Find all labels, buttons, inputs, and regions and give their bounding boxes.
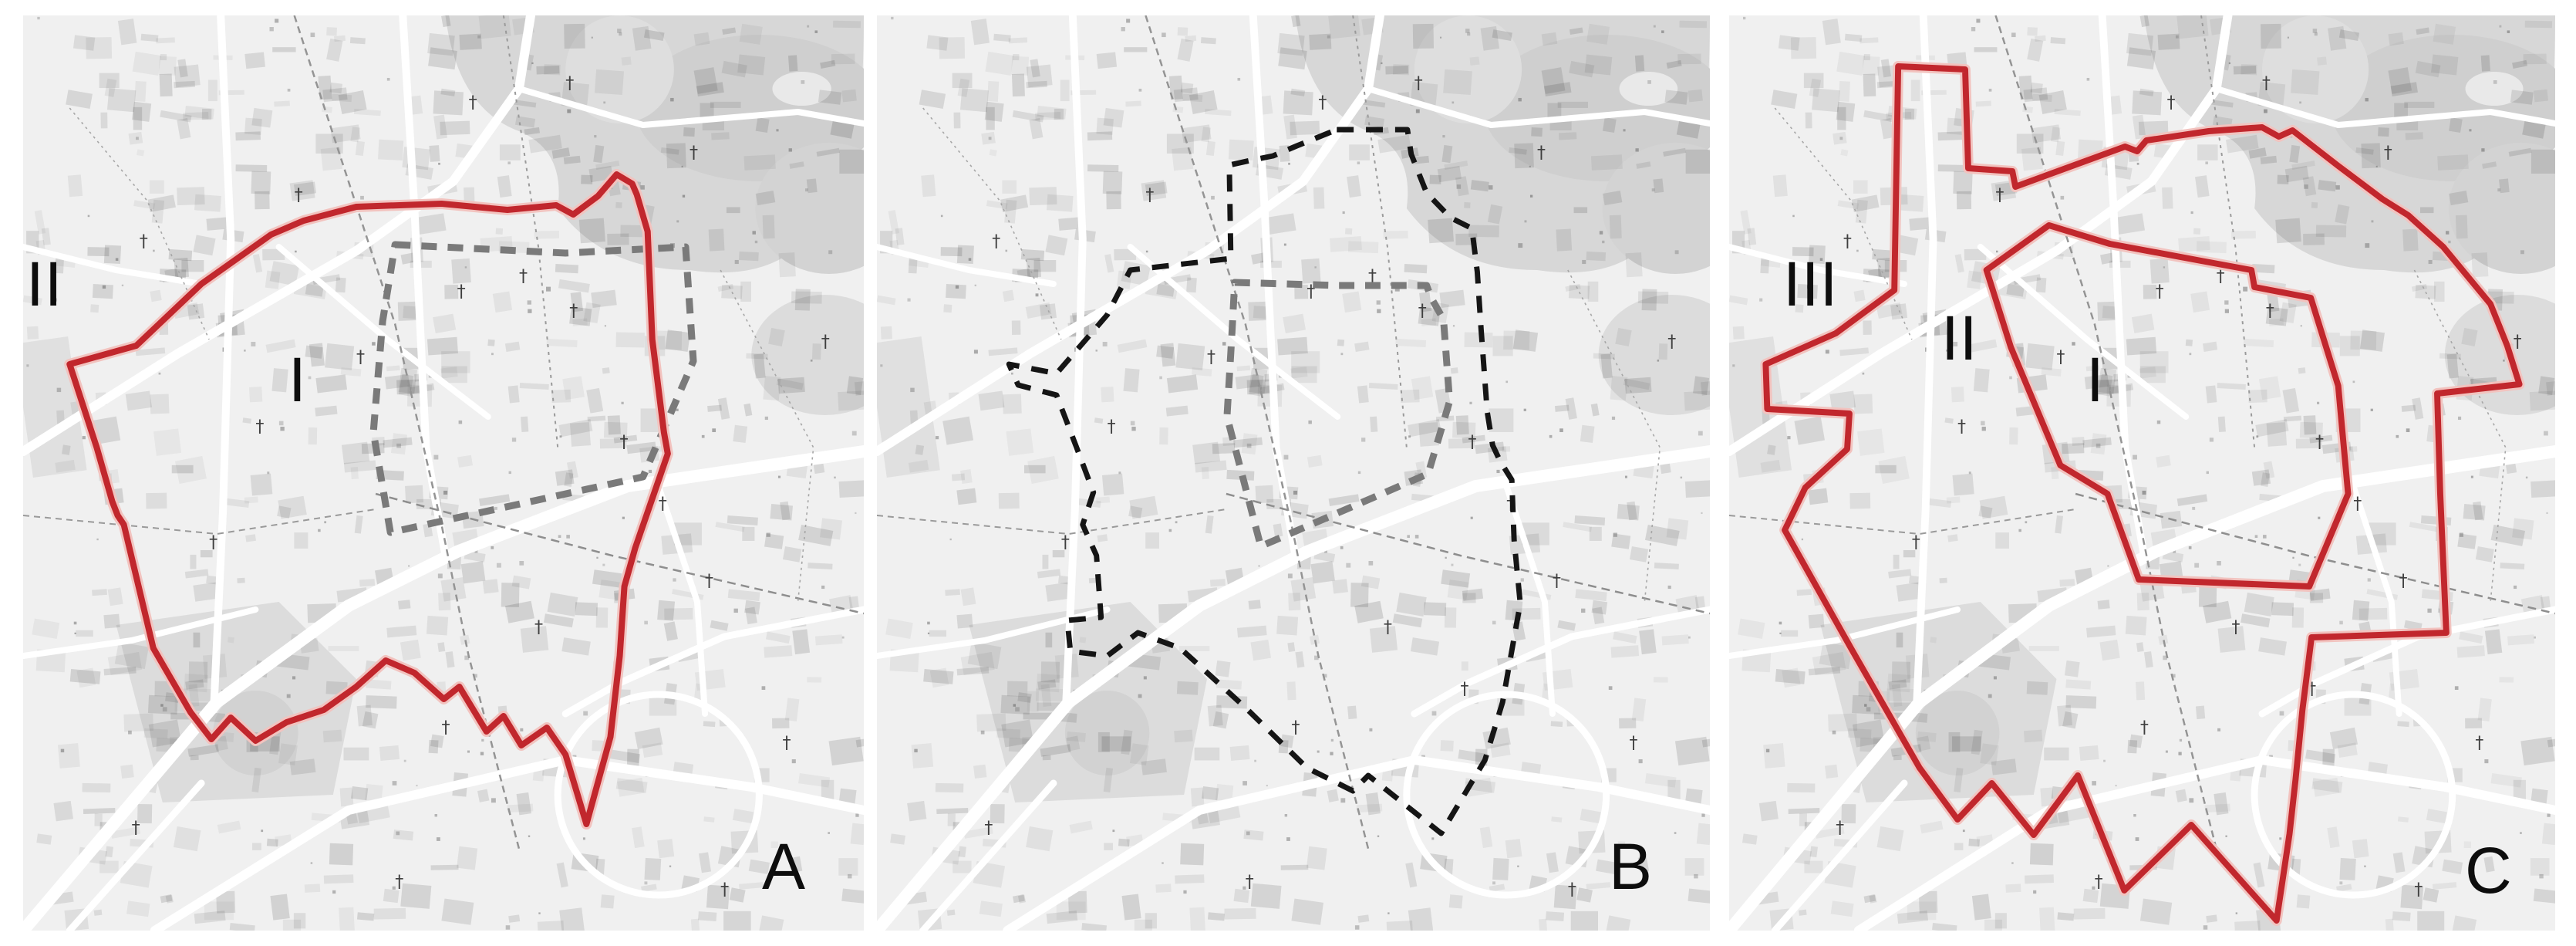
map-canvas-b bbox=[877, 15, 1710, 931]
basemap-b bbox=[877, 15, 1710, 931]
panel-letter-a: A bbox=[762, 834, 805, 899]
map-panel-a bbox=[23, 15, 864, 931]
map-canvas-a bbox=[23, 15, 864, 931]
zone-numeral-ii-panel-a: II bbox=[26, 253, 63, 316]
zone-numeral-iii-panel-c: III bbox=[1783, 253, 1838, 316]
figure: II I A B III II I C bbox=[0, 0, 2576, 946]
map-panel-c bbox=[1729, 15, 2555, 931]
zone-numeral-i-panel-c: I bbox=[2086, 349, 2105, 412]
zone-numeral-i-panel-a: I bbox=[288, 349, 307, 412]
map-panel-b bbox=[877, 15, 1710, 931]
map-canvas-c bbox=[1729, 15, 2555, 931]
zone-numeral-ii-panel-c: II bbox=[1941, 307, 1978, 370]
panel-letter-b: B bbox=[1609, 834, 1652, 899]
basemap-a bbox=[23, 15, 864, 931]
panel-letter-c: C bbox=[2465, 838, 2512, 903]
